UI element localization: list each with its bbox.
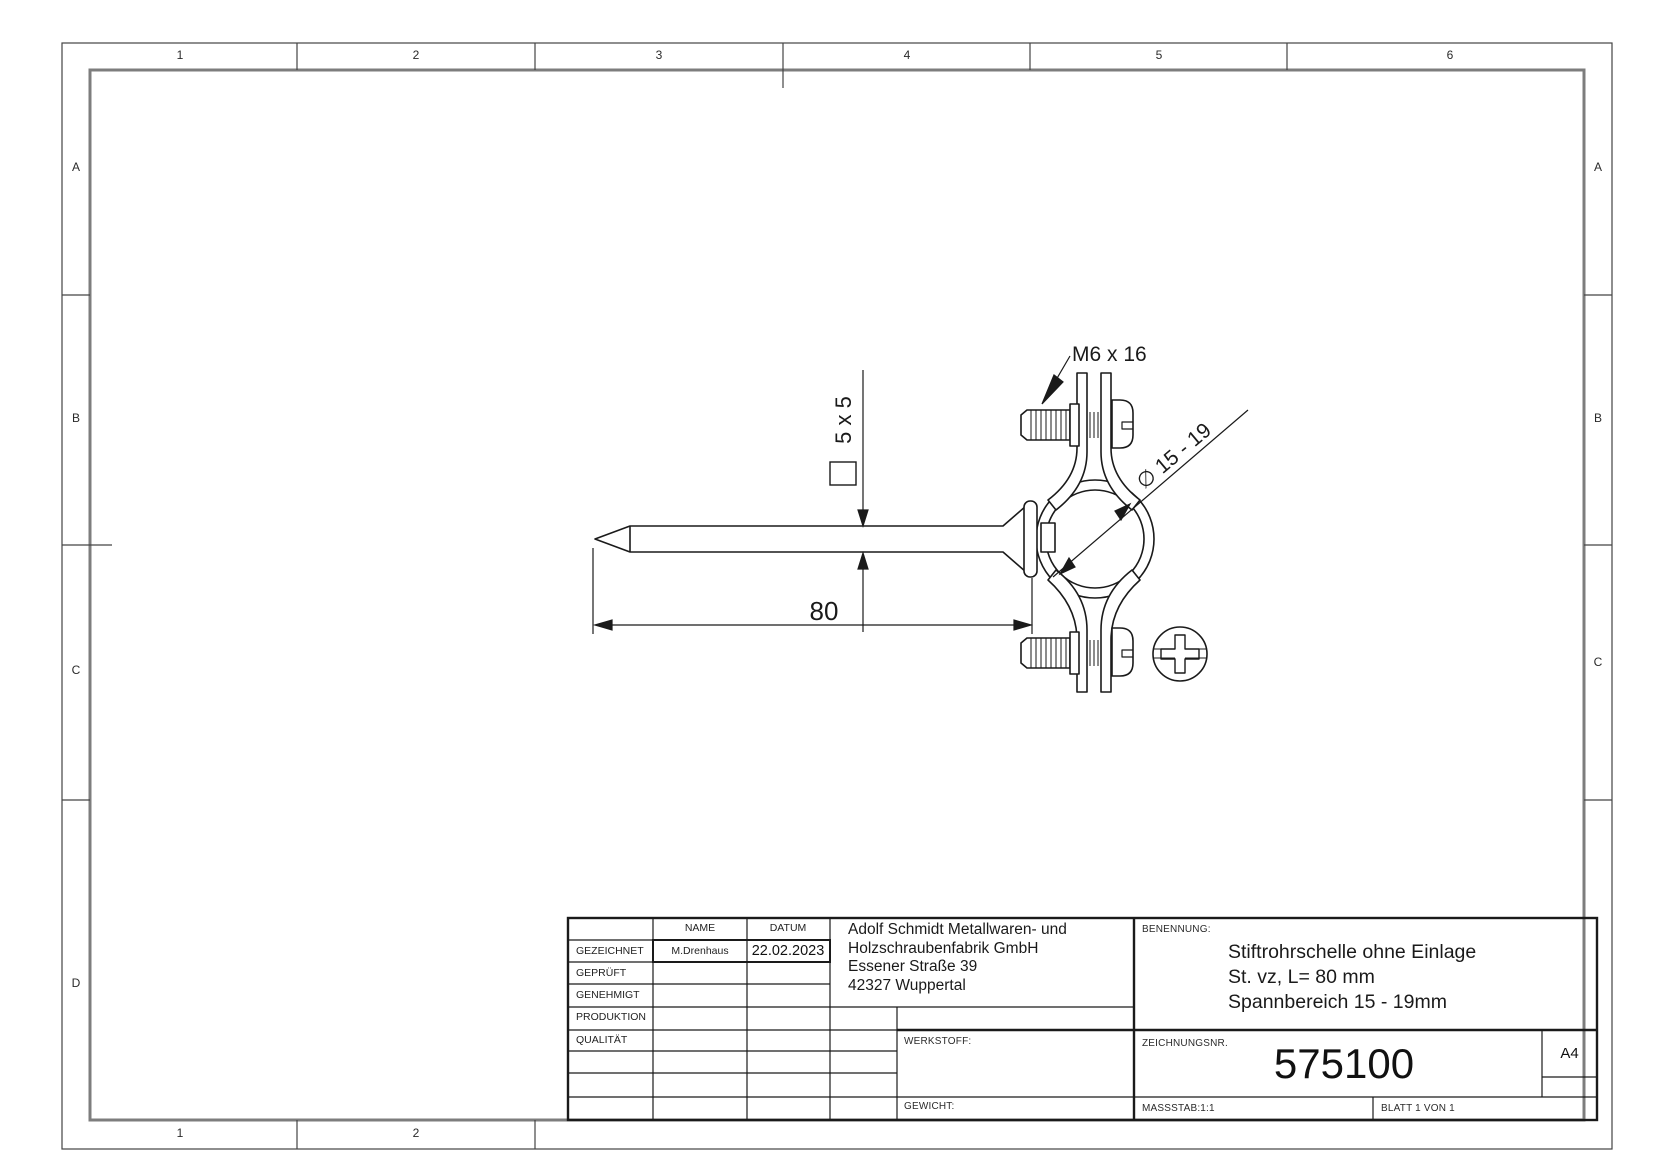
screw-bottom <box>1021 628 1133 676</box>
square-symbol <box>830 462 856 485</box>
label-m6x16: M6 x 16 <box>1072 343 1147 366</box>
part-view <box>595 373 1207 692</box>
grid-row-d-left: D <box>64 976 88 990</box>
part-title: Stiftrohrschelle ohne Einlage St. vz, L=… <box>1228 940 1476 1015</box>
blatt-label: BLATT 1 VON 1 <box>1381 1103 1455 1114</box>
grid-row-a-right: A <box>1586 160 1610 174</box>
grid-col-6-top: 6 <box>1430 48 1470 62</box>
company-line: Adolf Schmidt Metallwaren- und <box>848 921 1067 940</box>
approval-row-label: GENEHMIGT <box>576 989 640 1001</box>
company-address: Adolf Schmidt Metallwaren- und Holzschra… <box>848 921 1067 995</box>
part-title-line: Stiftrohrschelle ohne Einlage <box>1228 940 1476 965</box>
part-title-line: Spannbereich 15 - 19mm <box>1228 990 1476 1015</box>
approval-row-label: GEZEICHNET <box>576 945 644 957</box>
phillips-head-front <box>1153 627 1207 681</box>
grid-row-b-left: B <box>64 411 88 425</box>
grid-row-c-left: C <box>64 663 88 677</box>
part-title-line: St. vz, L= 80 mm <box>1228 965 1476 990</box>
grid-row-a-left: A <box>64 160 88 174</box>
approval-row-label: GEPRÜFT <box>576 967 626 979</box>
company-line: Holzschraubenfabrik GmbH <box>848 940 1067 959</box>
gewicht-label: GEWICHT: <box>904 1101 955 1112</box>
approvals-date-header: DATUM <box>748 922 828 934</box>
approval-row-name: M.Drenhaus <box>660 945 740 957</box>
werkstoff-label: WERKSTOFF: <box>904 1036 971 1047</box>
company-line: 42327 Wuppertal <box>848 977 1067 996</box>
pin-square-end <box>1041 523 1055 552</box>
benennung-label: BENENNUNG: <box>1142 924 1211 935</box>
grid-row-b-right: B <box>1586 411 1610 425</box>
pin-body <box>595 506 1026 572</box>
grid-col-4-top: 4 <box>887 48 927 62</box>
dimensions <box>593 356 1248 634</box>
grid-col-1-bottom: 1 <box>160 1126 200 1140</box>
label-dia-15-19: ∅ 15 - 19 <box>1132 419 1215 494</box>
screw-top <box>1021 400 1133 448</box>
grid-col-2-bottom: 2 <box>396 1126 436 1140</box>
annotation-texts: M6 x 16 80 5 x 5 ∅ 15 - 19 <box>810 343 1216 626</box>
grid-row-c-right: C <box>1586 655 1610 669</box>
grid-col-5-top: 5 <box>1139 48 1179 62</box>
approval-row-date: 22.02.2023 <box>748 943 828 959</box>
drawing-number: 575100 <box>1154 1040 1534 1088</box>
grid-col-3-top: 3 <box>639 48 679 62</box>
label-80: 80 <box>810 596 839 626</box>
massstab-label: MASSSTAB:1:1 <box>1142 1103 1215 1114</box>
approval-row-label: PRODUKTION <box>576 1011 646 1023</box>
pin-flange <box>1024 501 1037 577</box>
paper-format: A4 <box>1542 1045 1597 1062</box>
grid-col-1-top: 1 <box>160 48 200 62</box>
company-line: Essener Straße 39 <box>848 958 1067 977</box>
drawing-sheet: M6 x 16 80 5 x 5 ∅ 15 - 19 <box>0 0 1674 1166</box>
grid-col-2-top: 2 <box>396 48 436 62</box>
approvals-name-header: NAME <box>660 922 740 934</box>
label-5x5: 5 x 5 <box>831 396 856 444</box>
approval-row-label: QUALITÄT <box>576 1034 627 1046</box>
